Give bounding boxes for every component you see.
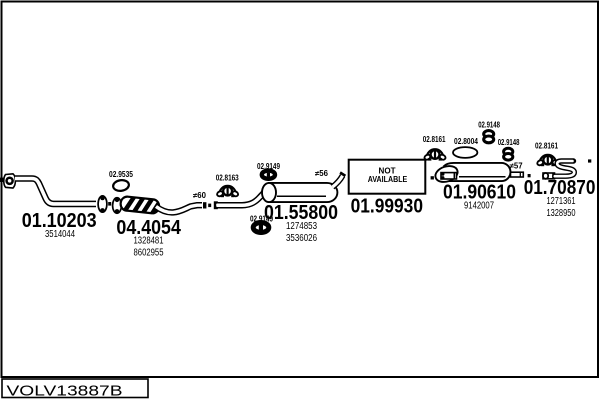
svg-text:02.9148: 02.9148 <box>498 138 520 147</box>
svg-text:02.8161: 02.8161 <box>535 142 558 151</box>
svg-text:02.9535: 02.9535 <box>109 170 133 179</box>
svg-text:1328950: 1328950 <box>547 208 576 219</box>
svg-text:02.8004: 02.8004 <box>454 137 478 146</box>
svg-text:01.99930: 01.99930 <box>351 196 423 218</box>
svg-text:8602955: 8602955 <box>134 248 164 259</box>
svg-text:3514044: 3514044 <box>45 229 75 240</box>
svg-text:9142007: 9142007 <box>464 201 494 212</box>
svg-text:≠57: ≠57 <box>510 162 524 171</box>
svg-text:1274853: 1274853 <box>286 221 317 232</box>
svg-text:1271361: 1271361 <box>547 196 576 207</box>
svg-text:1328481: 1328481 <box>134 236 164 247</box>
svg-text:02.9148: 02.9148 <box>478 121 500 130</box>
svg-text:02.8163: 02.8163 <box>216 173 239 182</box>
svg-text:≠56: ≠56 <box>315 169 329 178</box>
svg-text:AVAILABLE: AVAILABLE <box>368 175 408 184</box>
svg-text:VOLV13887B: VOLV13887B <box>7 383 123 400</box>
svg-text:02.8161: 02.8161 <box>423 135 446 144</box>
svg-text:3536026: 3536026 <box>286 233 317 244</box>
svg-text:≠60: ≠60 <box>193 191 207 200</box>
